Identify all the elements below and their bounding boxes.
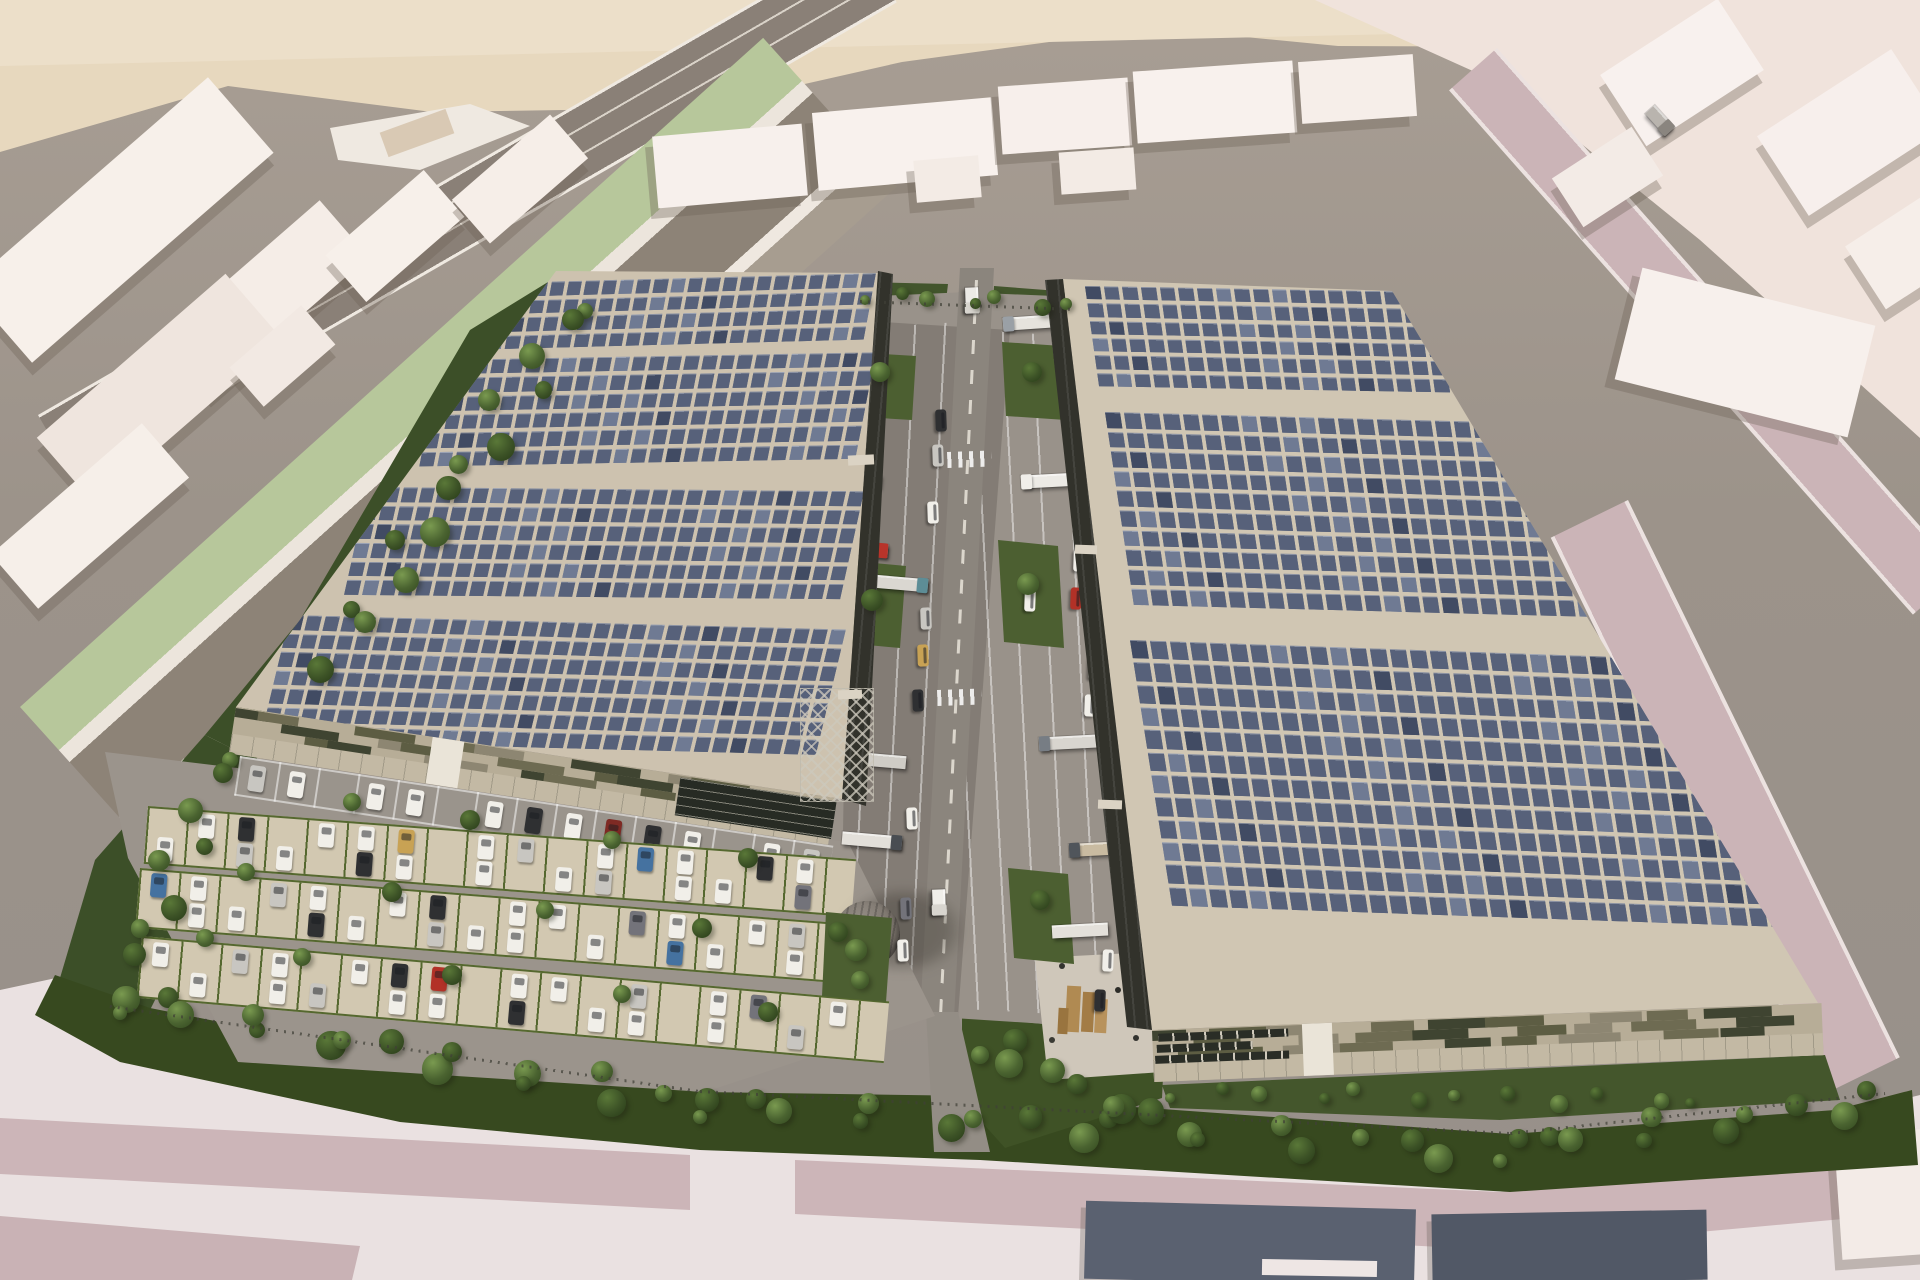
solar-panel	[1369, 894, 1388, 913]
solar-panel	[1206, 866, 1225, 885]
solar-panel	[1665, 882, 1684, 901]
solar-panel	[778, 409, 794, 424]
solar-panel	[1202, 415, 1220, 431]
solar-panel	[620, 412, 636, 427]
solar-panel	[1435, 807, 1454, 826]
solar-panel	[675, 737, 693, 752]
solar-panel	[1328, 290, 1345, 304]
solar-panel	[763, 546, 780, 561]
solar-panel	[1475, 808, 1494, 827]
solar-panel	[1205, 434, 1223, 450]
solar-panel	[1311, 307, 1328, 321]
solar-panel	[729, 329, 745, 343]
car-glass	[471, 929, 482, 936]
solar-panel	[1424, 740, 1443, 759]
dock-island-tree	[861, 589, 883, 611]
solar-panel	[840, 291, 856, 305]
solar-panel	[539, 334, 555, 348]
solar-panel	[523, 582, 540, 597]
solar-panel	[1227, 454, 1245, 470]
solar-panel	[1498, 832, 1517, 851]
context-building-dark	[1431, 1210, 1707, 1280]
solar-panel	[1257, 689, 1276, 708]
solar-panel	[563, 563, 580, 578]
car-glass	[687, 836, 698, 844]
solar-panel	[431, 693, 449, 708]
solar-panel	[1167, 570, 1185, 586]
parked-car	[586, 934, 604, 959]
solar-panel	[791, 275, 807, 289]
solar-panel	[1377, 378, 1394, 392]
car-glass	[279, 850, 290, 857]
tree-cluster-plaza	[1040, 1058, 1065, 1083]
solar-panel	[1397, 557, 1415, 573]
solar-panel	[1258, 324, 1275, 338]
solar-panel	[1382, 458, 1400, 474]
solar-panel	[481, 525, 498, 540]
solar-panel	[831, 408, 847, 423]
solar-panel	[1194, 493, 1212, 509]
solar-panel	[1114, 471, 1132, 487]
solar-panel	[1105, 412, 1123, 428]
solar-panel	[1388, 761, 1407, 780]
solar-panel	[826, 584, 843, 599]
solar-panel	[616, 430, 632, 445]
solar-panel	[1188, 453, 1206, 469]
solar-panel	[1145, 550, 1163, 566]
solar-panel	[1155, 797, 1174, 816]
solar-panel	[1524, 743, 1543, 762]
car-glass	[906, 900, 910, 915]
solar-panel	[1644, 747, 1663, 766]
car-glass	[938, 447, 942, 462]
solar-panel	[1314, 515, 1332, 531]
solar-panel	[561, 489, 578, 504]
solar-panel	[1319, 359, 1336, 373]
solar-panel	[1148, 570, 1166, 586]
car-glass	[160, 841, 171, 848]
solar-panel	[821, 371, 837, 386]
solar-panel	[708, 410, 724, 425]
solar-panel	[1321, 377, 1338, 391]
solar-panel	[1448, 763, 1467, 782]
solar-panel	[521, 621, 539, 636]
solar-panel	[362, 580, 379, 595]
solar-panel	[1165, 322, 1182, 336]
solar-panel	[1702, 861, 1721, 880]
solar-panel	[1349, 497, 1367, 513]
solar-panel	[1302, 847, 1321, 866]
solar-panel	[440, 433, 456, 448]
solar-panel	[629, 314, 645, 328]
solar-panel	[1264, 573, 1282, 589]
solar-panel	[796, 409, 812, 424]
solar-panel	[729, 391, 745, 406]
solar-panel	[1318, 418, 1336, 434]
solar-panel	[1645, 881, 1664, 900]
solar-panel	[477, 544, 494, 559]
solar-panel	[535, 714, 553, 729]
solar-panel	[1106, 304, 1123, 318]
solar-panel	[1319, 555, 1337, 571]
car-glass	[926, 610, 930, 625]
solar-panel	[1151, 775, 1170, 794]
solar-panel	[1365, 291, 1382, 305]
solar-panel	[738, 627, 756, 642]
parked-car	[269, 882, 287, 907]
solar-panel	[1389, 895, 1408, 914]
solar-panel	[1305, 456, 1323, 472]
solar-panel	[451, 581, 468, 596]
solar-panel	[621, 735, 639, 750]
solar-panel	[1250, 475, 1268, 491]
solar-panel	[1178, 820, 1197, 839]
solar-panel	[1355, 804, 1374, 823]
solar-panel	[1188, 357, 1205, 371]
solar-panel	[1454, 421, 1472, 437]
solar-panel	[767, 528, 784, 543]
solar-panel	[771, 446, 787, 461]
solar-panel	[722, 277, 738, 291]
solar-panel	[531, 544, 548, 559]
solar-panel	[1622, 858, 1641, 877]
solar-panel	[628, 508, 645, 523]
solar-panel	[829, 491, 846, 506]
solar-panel	[1589, 902, 1608, 921]
solar-panel	[1582, 857, 1601, 876]
solar-panel	[1146, 322, 1163, 336]
parking-tree	[293, 948, 311, 966]
car-glass	[923, 647, 927, 662]
solar-panel	[1230, 474, 1248, 490]
solar-panel	[1551, 789, 1570, 808]
solar-panel	[1491, 540, 1509, 556]
solar-panel	[1306, 870, 1325, 889]
solar-panel	[632, 297, 648, 311]
solar-panel	[759, 565, 776, 580]
car-glass	[680, 854, 691, 861]
solar-panel	[1295, 802, 1314, 821]
solar-panel	[1478, 831, 1497, 850]
car-glass	[760, 860, 771, 867]
solar-panel	[736, 355, 752, 370]
solar-panel	[1214, 493, 1232, 509]
solar-panel	[1242, 553, 1260, 569]
solar-panel	[1216, 288, 1233, 302]
solar-panel	[1497, 697, 1516, 716]
solar-panel	[1122, 287, 1139, 301]
solar-panel	[683, 447, 699, 462]
solar-panel	[543, 358, 559, 373]
solar-panel	[438, 562, 455, 577]
parked-car	[347, 916, 365, 941]
solar-panel	[318, 634, 336, 649]
solar-panel	[1210, 643, 1229, 662]
solar-panel	[679, 644, 697, 659]
solar-panel	[1408, 498, 1426, 514]
solar-panel	[612, 582, 629, 597]
solar-panel	[1372, 517, 1390, 533]
tree-row-west	[519, 343, 545, 369]
solar-panel	[1465, 875, 1484, 894]
solar-panel	[843, 274, 859, 288]
solar-panel	[373, 710, 391, 725]
solar-panel	[807, 353, 823, 368]
solar-panel	[729, 664, 747, 679]
solar-panel	[752, 646, 770, 661]
solar-panel	[788, 647, 806, 662]
car-glass	[631, 1015, 642, 1022]
solar-panel	[641, 393, 657, 408]
solar-panel	[1162, 305, 1179, 319]
solar-panel	[1335, 342, 1352, 356]
solar-panel	[1316, 342, 1333, 356]
parked-car	[397, 829, 415, 854]
solar-panel	[839, 528, 856, 543]
solar-panel	[1388, 326, 1405, 340]
solar-panel	[1482, 853, 1501, 872]
solar-panel	[400, 487, 417, 502]
solar-panel	[372, 636, 390, 651]
solar-panel	[743, 683, 761, 698]
solar-panel	[825, 510, 842, 525]
solar-panel	[1477, 697, 1496, 716]
solar-panel	[1509, 899, 1528, 918]
solar-panel	[849, 408, 865, 423]
parking-tree	[460, 810, 480, 830]
solar-panel	[720, 626, 738, 641]
car-glass	[559, 871, 570, 878]
solar-panel	[1293, 307, 1310, 321]
tree-row-buffer	[693, 1110, 707, 1124]
solar-panel	[626, 332, 642, 346]
solar-panel	[701, 447, 717, 462]
parked-car	[307, 912, 325, 937]
solar-panel	[606, 393, 622, 408]
solar-panel	[1430, 650, 1449, 669]
solar-panel	[767, 311, 783, 325]
solar-panel	[1286, 869, 1305, 888]
solar-panel	[788, 293, 804, 307]
solar-panel	[1087, 303, 1104, 317]
car-glass	[1076, 590, 1080, 605]
solar-panel	[1595, 813, 1614, 832]
solar-panel	[616, 679, 634, 694]
person	[1115, 987, 1121, 993]
solar-panel	[1685, 883, 1704, 902]
solar-panel	[1368, 760, 1387, 779]
solar-panel	[666, 447, 682, 462]
solar-panel	[1379, 439, 1397, 455]
solar-panel	[733, 373, 749, 388]
solar-panel	[1528, 766, 1547, 785]
solar-panel	[1249, 890, 1268, 909]
dock-island-tree	[845, 939, 867, 961]
solar-panel	[1402, 851, 1421, 870]
shrub-row-lawn	[1165, 1093, 1175, 1103]
solar-panel	[698, 719, 716, 734]
parked-car	[714, 879, 732, 904]
solar-panel	[1577, 700, 1596, 719]
solar-panel	[1333, 516, 1351, 532]
dock-island-tree	[1030, 890, 1050, 910]
solar-panel	[450, 506, 467, 521]
solar-panel	[1221, 323, 1238, 337]
solar-panel	[1250, 644, 1269, 663]
person	[1059, 963, 1065, 969]
tree-row-buffer	[442, 1042, 462, 1062]
truck-cab	[1002, 316, 1014, 332]
solar-panel	[1137, 685, 1156, 704]
solar-panel	[817, 390, 833, 405]
truck-cab	[916, 577, 928, 593]
tree-row-buffer	[853, 1113, 869, 1129]
solar-panel	[693, 663, 711, 678]
solar-panel	[1401, 716, 1420, 735]
solar-panel	[406, 543, 423, 558]
solar-panel	[603, 735, 621, 750]
parked-car	[630, 984, 648, 1009]
car-glass	[647, 830, 658, 838]
solar-panel	[419, 452, 435, 467]
solar-panel	[634, 680, 652, 695]
solar-panel	[1234, 289, 1251, 303]
solar-panel	[684, 625, 702, 640]
solar-panel	[427, 637, 445, 652]
solar-panel	[1181, 305, 1198, 319]
solar-panel	[1358, 827, 1377, 846]
solar-panel	[1350, 648, 1369, 667]
solar-panel	[508, 488, 525, 503]
solar-panel	[1460, 719, 1479, 738]
solar-panel	[1269, 475, 1287, 491]
car-glass	[798, 889, 809, 896]
car-glass	[311, 917, 322, 924]
car-glass	[359, 856, 370, 863]
solar-panel	[517, 526, 534, 541]
solar-panel	[1274, 307, 1291, 321]
solar-panel	[1142, 531, 1160, 547]
solar-panel	[1186, 865, 1205, 884]
solar-panel	[546, 299, 562, 313]
solar-panel	[1488, 520, 1506, 536]
solar-panel	[1197, 687, 1216, 706]
solar-panel	[1457, 696, 1476, 715]
solar-panel	[1370, 648, 1389, 667]
solar-panel	[1385, 872, 1404, 891]
solar-panel	[476, 657, 494, 672]
solar-panel	[612, 698, 630, 713]
solar-panel	[1208, 754, 1227, 773]
solar-panel	[1337, 692, 1356, 711]
parked-car	[550, 977, 568, 1002]
parked-car	[286, 771, 306, 799]
solar-panel	[1095, 356, 1112, 370]
solar-panel	[850, 326, 866, 340]
solar-panel	[598, 679, 616, 694]
solar-panel	[420, 562, 437, 577]
solar-panel	[678, 527, 695, 542]
solar-panel	[686, 490, 703, 505]
car-glass	[529, 812, 540, 820]
shrub-row-lawn	[1590, 1087, 1603, 1100]
solar-panel	[1394, 537, 1412, 553]
solar-panel	[1191, 375, 1208, 389]
solar-panel	[1369, 497, 1387, 513]
car-glass	[351, 920, 362, 927]
parked-car	[357, 826, 375, 851]
solar-panel	[594, 582, 611, 597]
solar-panel	[1271, 779, 1290, 798]
solar-panel	[1237, 306, 1254, 320]
solar-panel	[704, 490, 721, 505]
solar-panel	[687, 429, 703, 444]
parked-car	[391, 963, 409, 988]
solar-panel	[395, 692, 413, 707]
parked-car	[628, 911, 646, 936]
solar-panel	[1520, 721, 1539, 740]
tree-row-southwest	[196, 838, 213, 855]
solar-panel	[1120, 510, 1138, 526]
solar-panel	[348, 562, 365, 577]
solar-panel	[1491, 787, 1510, 806]
solar-panel	[1141, 287, 1158, 301]
car-glass	[235, 954, 246, 961]
solar-panel	[1430, 519, 1448, 535]
solar-panel	[743, 409, 759, 424]
solar-panel	[1170, 641, 1189, 660]
solar-panel	[481, 713, 499, 728]
solar-panel	[585, 734, 603, 749]
solar-panel	[1317, 535, 1335, 551]
solar-panel	[449, 694, 467, 709]
solar-panel	[595, 315, 611, 329]
solar-panel	[1225, 572, 1243, 588]
solar-panel	[1500, 599, 1518, 615]
solar-panel	[678, 330, 694, 344]
solar-panel	[531, 733, 549, 748]
car-glass	[791, 1029, 802, 1036]
facade-pier	[1302, 1023, 1334, 1076]
car-glass	[395, 967, 406, 974]
solar-panel	[709, 546, 726, 561]
parked-car	[189, 972, 207, 997]
solar-panel	[1207, 357, 1224, 371]
solar-panel	[1157, 686, 1176, 705]
solar-panel	[594, 623, 612, 638]
solar-panel	[789, 509, 806, 524]
solar-panel	[705, 565, 722, 580]
solar-panel	[1519, 599, 1537, 615]
solar-panel	[463, 638, 481, 653]
car-glass	[672, 918, 683, 925]
solar-panel	[1148, 752, 1167, 771]
solar-panel	[634, 564, 651, 579]
solar-panel	[431, 619, 449, 634]
solar-panel	[1183, 414, 1201, 430]
solar-panel	[468, 507, 485, 522]
solar-panel	[648, 699, 666, 714]
solar-panel	[1508, 765, 1527, 784]
solar-panel	[535, 526, 552, 541]
parked-car	[709, 991, 727, 1016]
solar-panel	[1247, 375, 1264, 389]
solar-panel	[1535, 811, 1554, 830]
solar-panel	[549, 733, 567, 748]
solar-panel	[514, 413, 530, 428]
parked-car	[756, 856, 774, 881]
solar-panel	[702, 700, 720, 715]
